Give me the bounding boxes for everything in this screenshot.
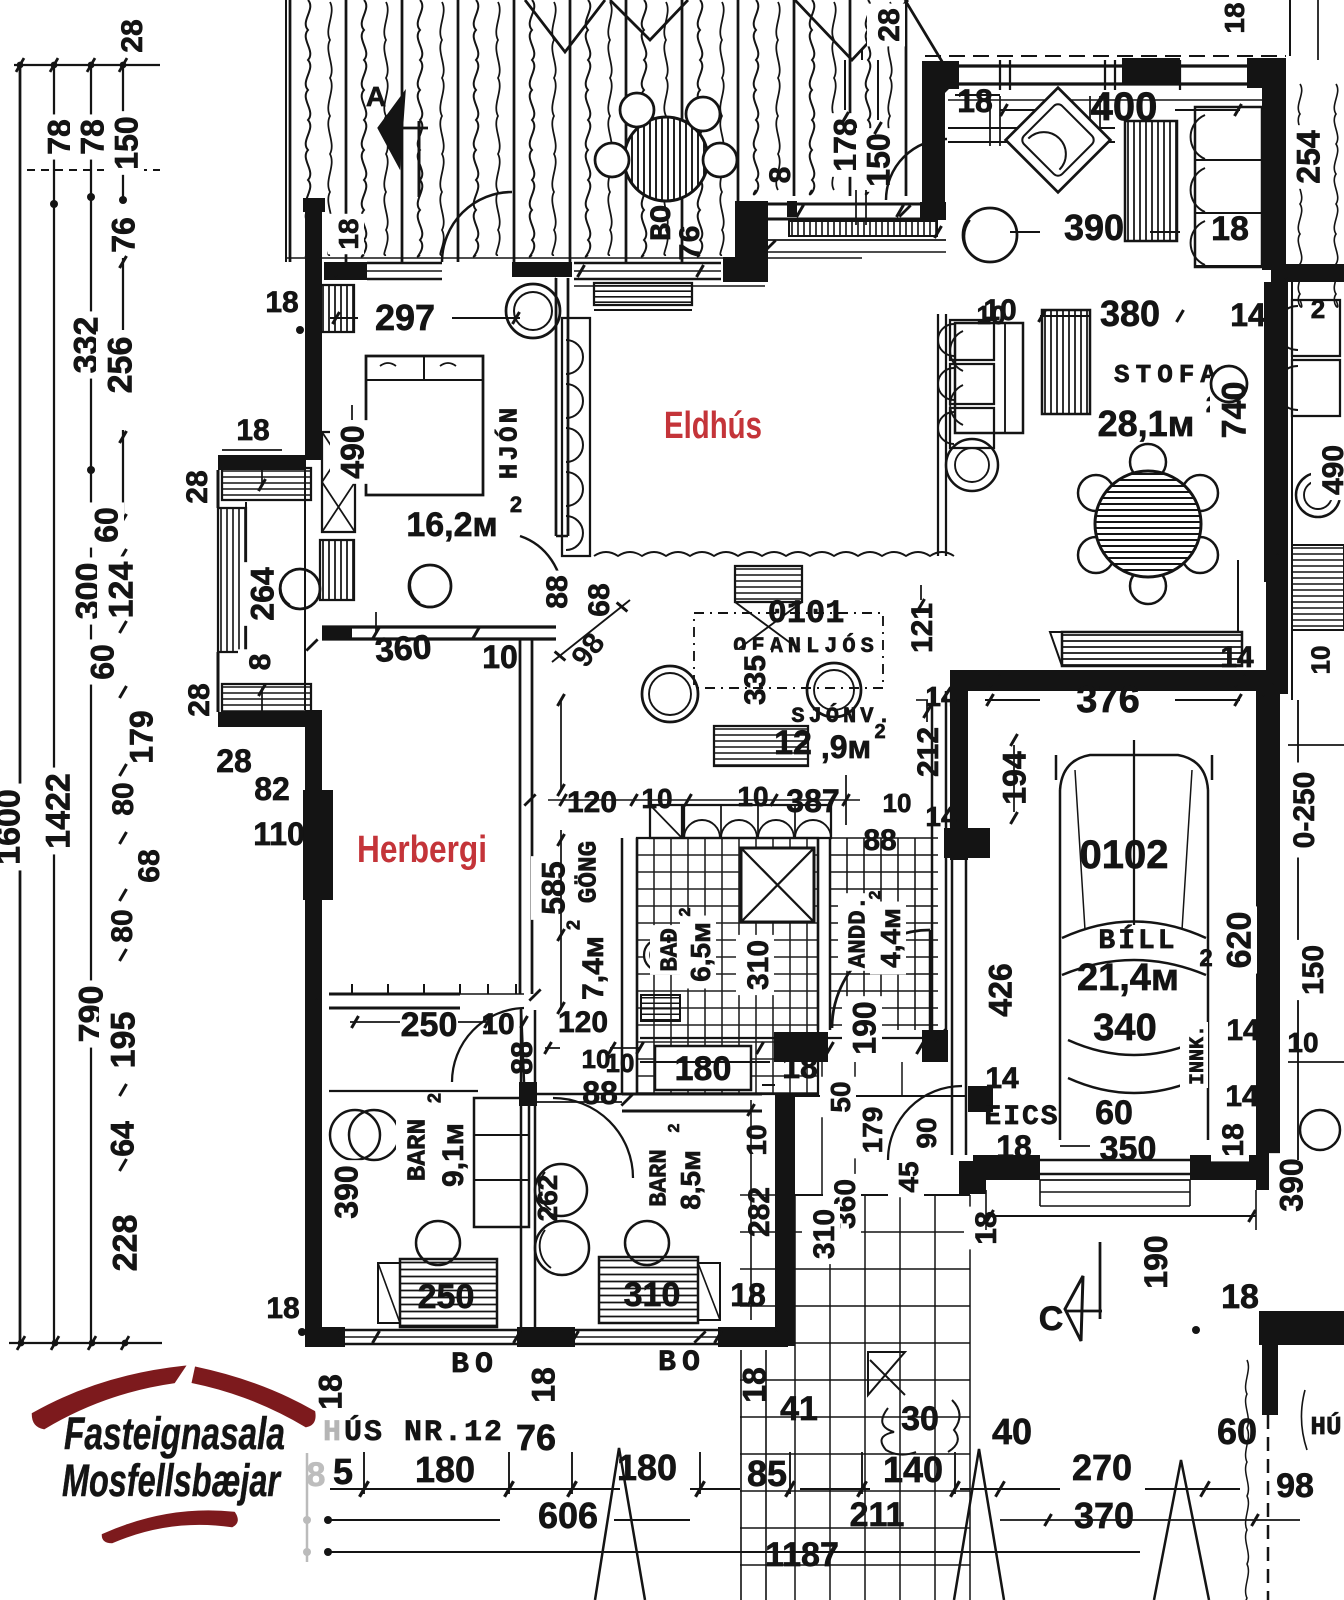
svg-text:18: 18 <box>737 1367 773 1403</box>
svg-text:8: 8 <box>307 1456 326 1494</box>
svg-text:60: 60 <box>1217 1411 1257 1452</box>
svg-text:76: 76 <box>106 217 142 253</box>
svg-text:350: 350 <box>1100 1130 1157 1168</box>
svg-text:30: 30 <box>901 1400 939 1438</box>
svg-text:76: 76 <box>516 1417 556 1458</box>
svg-text:195: 195 <box>104 1012 142 1069</box>
svg-text:8: 8 <box>244 654 277 671</box>
svg-text:18: 18 <box>333 218 364 249</box>
svg-text:18: 18 <box>730 1277 766 1313</box>
svg-text:5: 5 <box>333 1451 353 1492</box>
svg-text:390: 390 <box>1064 207 1124 248</box>
svg-text:60: 60 <box>1095 1094 1133 1132</box>
svg-text:ÚS NR.12: ÚS NR.12 <box>344 1415 504 1450</box>
svg-text:2: 2 <box>1199 945 1212 972</box>
svg-text:8: 8 <box>764 167 797 184</box>
svg-text:2: 2 <box>874 721 885 743</box>
svg-text:Eldhús: Eldhús <box>664 405 762 447</box>
svg-text:40: 40 <box>992 1411 1032 1452</box>
svg-text:14: 14 <box>925 801 957 832</box>
svg-text:14: 14 <box>1225 1080 1259 1113</box>
svg-text:80: 80 <box>106 909 139 942</box>
svg-text:14: 14 <box>1230 297 1266 333</box>
svg-text:262: 262 <box>532 1175 563 1222</box>
svg-text:212: 212 <box>912 727 945 777</box>
svg-text:180: 180 <box>415 1449 475 1490</box>
svg-text:270: 270 <box>1072 1447 1132 1488</box>
svg-text:10: 10 <box>1287 1027 1318 1058</box>
svg-text:18: 18 <box>957 83 993 119</box>
svg-text:45: 45 <box>893 1161 924 1192</box>
svg-text:426: 426 <box>983 963 1019 1016</box>
svg-text:28: 28 <box>216 743 252 779</box>
svg-text:18: 18 <box>236 414 269 447</box>
svg-text:256: 256 <box>101 337 139 394</box>
svg-text:1600: 1600 <box>0 789 27 865</box>
svg-text:HJÓN: HJÓN <box>494 405 524 479</box>
svg-text:376: 376 <box>1076 679 1139 721</box>
svg-text:1422: 1422 <box>39 773 77 849</box>
svg-text:68: 68 <box>583 583 616 616</box>
svg-text:Fasteignasala: Fasteignasala <box>64 1408 285 1459</box>
svg-text:6,5м: 6,5м <box>685 922 716 982</box>
svg-text:64: 64 <box>105 1121 141 1157</box>
svg-text:Mosfellsbæjar: Mosfellsbæjar <box>62 1455 282 1506</box>
svg-text:340: 340 <box>1093 1007 1156 1049</box>
svg-text:335: 335 <box>739 655 772 705</box>
svg-text:BO: BO <box>451 1348 499 1382</box>
svg-text:14: 14 <box>985 1062 1019 1095</box>
svg-text:18: 18 <box>1221 1278 1259 1316</box>
svg-text:1187: 1187 <box>765 1536 839 1574</box>
svg-text:18: 18 <box>313 1374 349 1410</box>
svg-text:INNK.: INNK. <box>1187 1025 1210 1085</box>
svg-text:A: A <box>366 81 386 112</box>
svg-text:250: 250 <box>401 1006 458 1044</box>
svg-text:28: 28 <box>873 8 906 41</box>
svg-text:2: 2 <box>510 492 522 517</box>
svg-text:BARN: BARN <box>647 1149 674 1207</box>
svg-text:585: 585 <box>536 861 572 914</box>
svg-text:88: 88 <box>541 575 574 608</box>
svg-text:85: 85 <box>747 1453 787 1494</box>
svg-text:264: 264 <box>245 567 281 621</box>
svg-text:490: 490 <box>335 425 371 478</box>
svg-text:179: 179 <box>857 1107 888 1154</box>
svg-text:180: 180 <box>617 1447 677 1488</box>
svg-text:18: 18 <box>1219 2 1250 33</box>
svg-text:18: 18 <box>1211 210 1249 248</box>
svg-text:190: 190 <box>1138 1235 1174 1288</box>
svg-text:2: 2 <box>677 907 694 916</box>
svg-text:211: 211 <box>850 1496 905 1534</box>
svg-text:254: 254 <box>1291 130 1327 184</box>
svg-text:8,5м: 8,5м <box>675 1150 706 1210</box>
svg-text:297: 297 <box>375 297 435 338</box>
svg-text:STOFA: STOFA <box>1114 360 1222 390</box>
svg-text:,9м: ,9м <box>821 729 871 765</box>
svg-text:180: 180 <box>675 1050 732 1088</box>
svg-text:310: 310 <box>742 940 775 990</box>
svg-text:14: 14 <box>1220 641 1254 674</box>
svg-text:18: 18 <box>526 1367 562 1403</box>
svg-text:98: 98 <box>1276 1467 1314 1505</box>
svg-text:50: 50 <box>825 1081 856 1112</box>
svg-text:9,1м: 9,1м <box>437 1123 470 1187</box>
svg-text:GÖNG: GÖNG <box>573 841 603 903</box>
svg-text:390: 390 <box>329 1165 365 1218</box>
svg-text:60: 60 <box>89 507 125 543</box>
svg-text:28: 28 <box>116 19 149 52</box>
svg-text:390: 390 <box>1274 1158 1310 1211</box>
svg-text:16,2м: 16,2м <box>406 506 497 544</box>
svg-text:BARN: BARN <box>402 1119 432 1181</box>
svg-text:90: 90 <box>911 1117 942 1148</box>
svg-text:H: H <box>323 1416 341 1450</box>
svg-text:620: 620 <box>1220 912 1258 969</box>
svg-text:76: 76 <box>675 225 709 261</box>
svg-text:14: 14 <box>1226 1014 1260 1047</box>
svg-text:18: 18 <box>996 1129 1032 1165</box>
svg-text:BÍLL: BÍLL <box>1098 925 1177 957</box>
svg-text:360: 360 <box>374 628 433 670</box>
svg-text:BO: BO <box>658 1346 706 1380</box>
svg-text:740: 740 <box>1215 382 1253 439</box>
svg-text:7,4м: 7,4м <box>577 936 610 1000</box>
svg-text:14: 14 <box>925 681 957 712</box>
svg-text:150: 150 <box>1297 945 1330 995</box>
svg-text:41: 41 <box>780 1390 818 1428</box>
svg-text:2: 2 <box>563 920 583 930</box>
svg-text:121: 121 <box>906 603 939 653</box>
svg-text:10: 10 <box>482 639 518 675</box>
svg-text:88: 88 <box>863 824 896 857</box>
svg-text:60: 60 <box>85 644 121 680</box>
svg-text:ANDD.: ANDD. <box>846 896 873 968</box>
svg-text:10: 10 <box>641 783 672 814</box>
svg-text:2: 2 <box>867 890 884 899</box>
svg-text:150: 150 <box>109 116 145 169</box>
svg-text:310: 310 <box>808 1209 841 1259</box>
svg-text:21,4м: 21,4м <box>1077 957 1179 999</box>
svg-text:10: 10 <box>737 781 768 812</box>
svg-text:370: 370 <box>1074 1495 1134 1536</box>
svg-text:110: 110 <box>253 816 305 852</box>
svg-text:10: 10 <box>983 294 1016 327</box>
svg-text:82: 82 <box>254 771 290 807</box>
svg-text:Herbergi: Herbergi <box>357 829 487 871</box>
svg-text:2: 2 <box>1311 294 1325 324</box>
svg-text:140: 140 <box>883 1449 943 1490</box>
svg-text:0102: 0102 <box>1080 833 1169 877</box>
svg-text:190: 190 <box>847 1001 883 1054</box>
svg-text:10: 10 <box>741 1124 772 1155</box>
svg-text:28: 28 <box>183 683 216 716</box>
svg-text:80: 80 <box>107 782 140 815</box>
svg-text:C: C <box>1039 1300 1064 1338</box>
svg-text:380: 380 <box>1100 293 1160 334</box>
svg-text:124: 124 <box>102 562 140 619</box>
svg-text:120: 120 <box>558 1006 608 1039</box>
svg-text:179: 179 <box>124 710 160 763</box>
svg-text:28: 28 <box>181 470 214 503</box>
svg-text:10: 10 <box>883 788 912 818</box>
svg-text:228: 228 <box>106 1215 144 1272</box>
svg-text:606: 606 <box>538 1495 598 1536</box>
svg-text:250: 250 <box>418 1278 475 1316</box>
svg-text:28,1м: 28,1м <box>1098 403 1195 444</box>
svg-text:18: 18 <box>266 1292 299 1325</box>
svg-text:18: 18 <box>265 286 298 319</box>
svg-text:HÚ: HÚ <box>1310 1412 1341 1442</box>
svg-text:4,4м: 4,4м <box>875 908 906 968</box>
svg-text:0-250: 0-250 <box>1288 772 1321 849</box>
svg-text:10: 10 <box>1305 646 1335 675</box>
svg-text:68: 68 <box>133 849 166 882</box>
svg-text:490: 490 <box>1317 445 1344 495</box>
svg-text:310: 310 <box>624 1276 681 1314</box>
svg-text:2: 2 <box>666 1123 683 1132</box>
svg-text:120: 120 <box>567 786 617 819</box>
svg-text:150: 150 <box>861 133 897 186</box>
svg-text:18: 18 <box>1217 1123 1250 1156</box>
svg-text:2: 2 <box>424 1093 444 1103</box>
